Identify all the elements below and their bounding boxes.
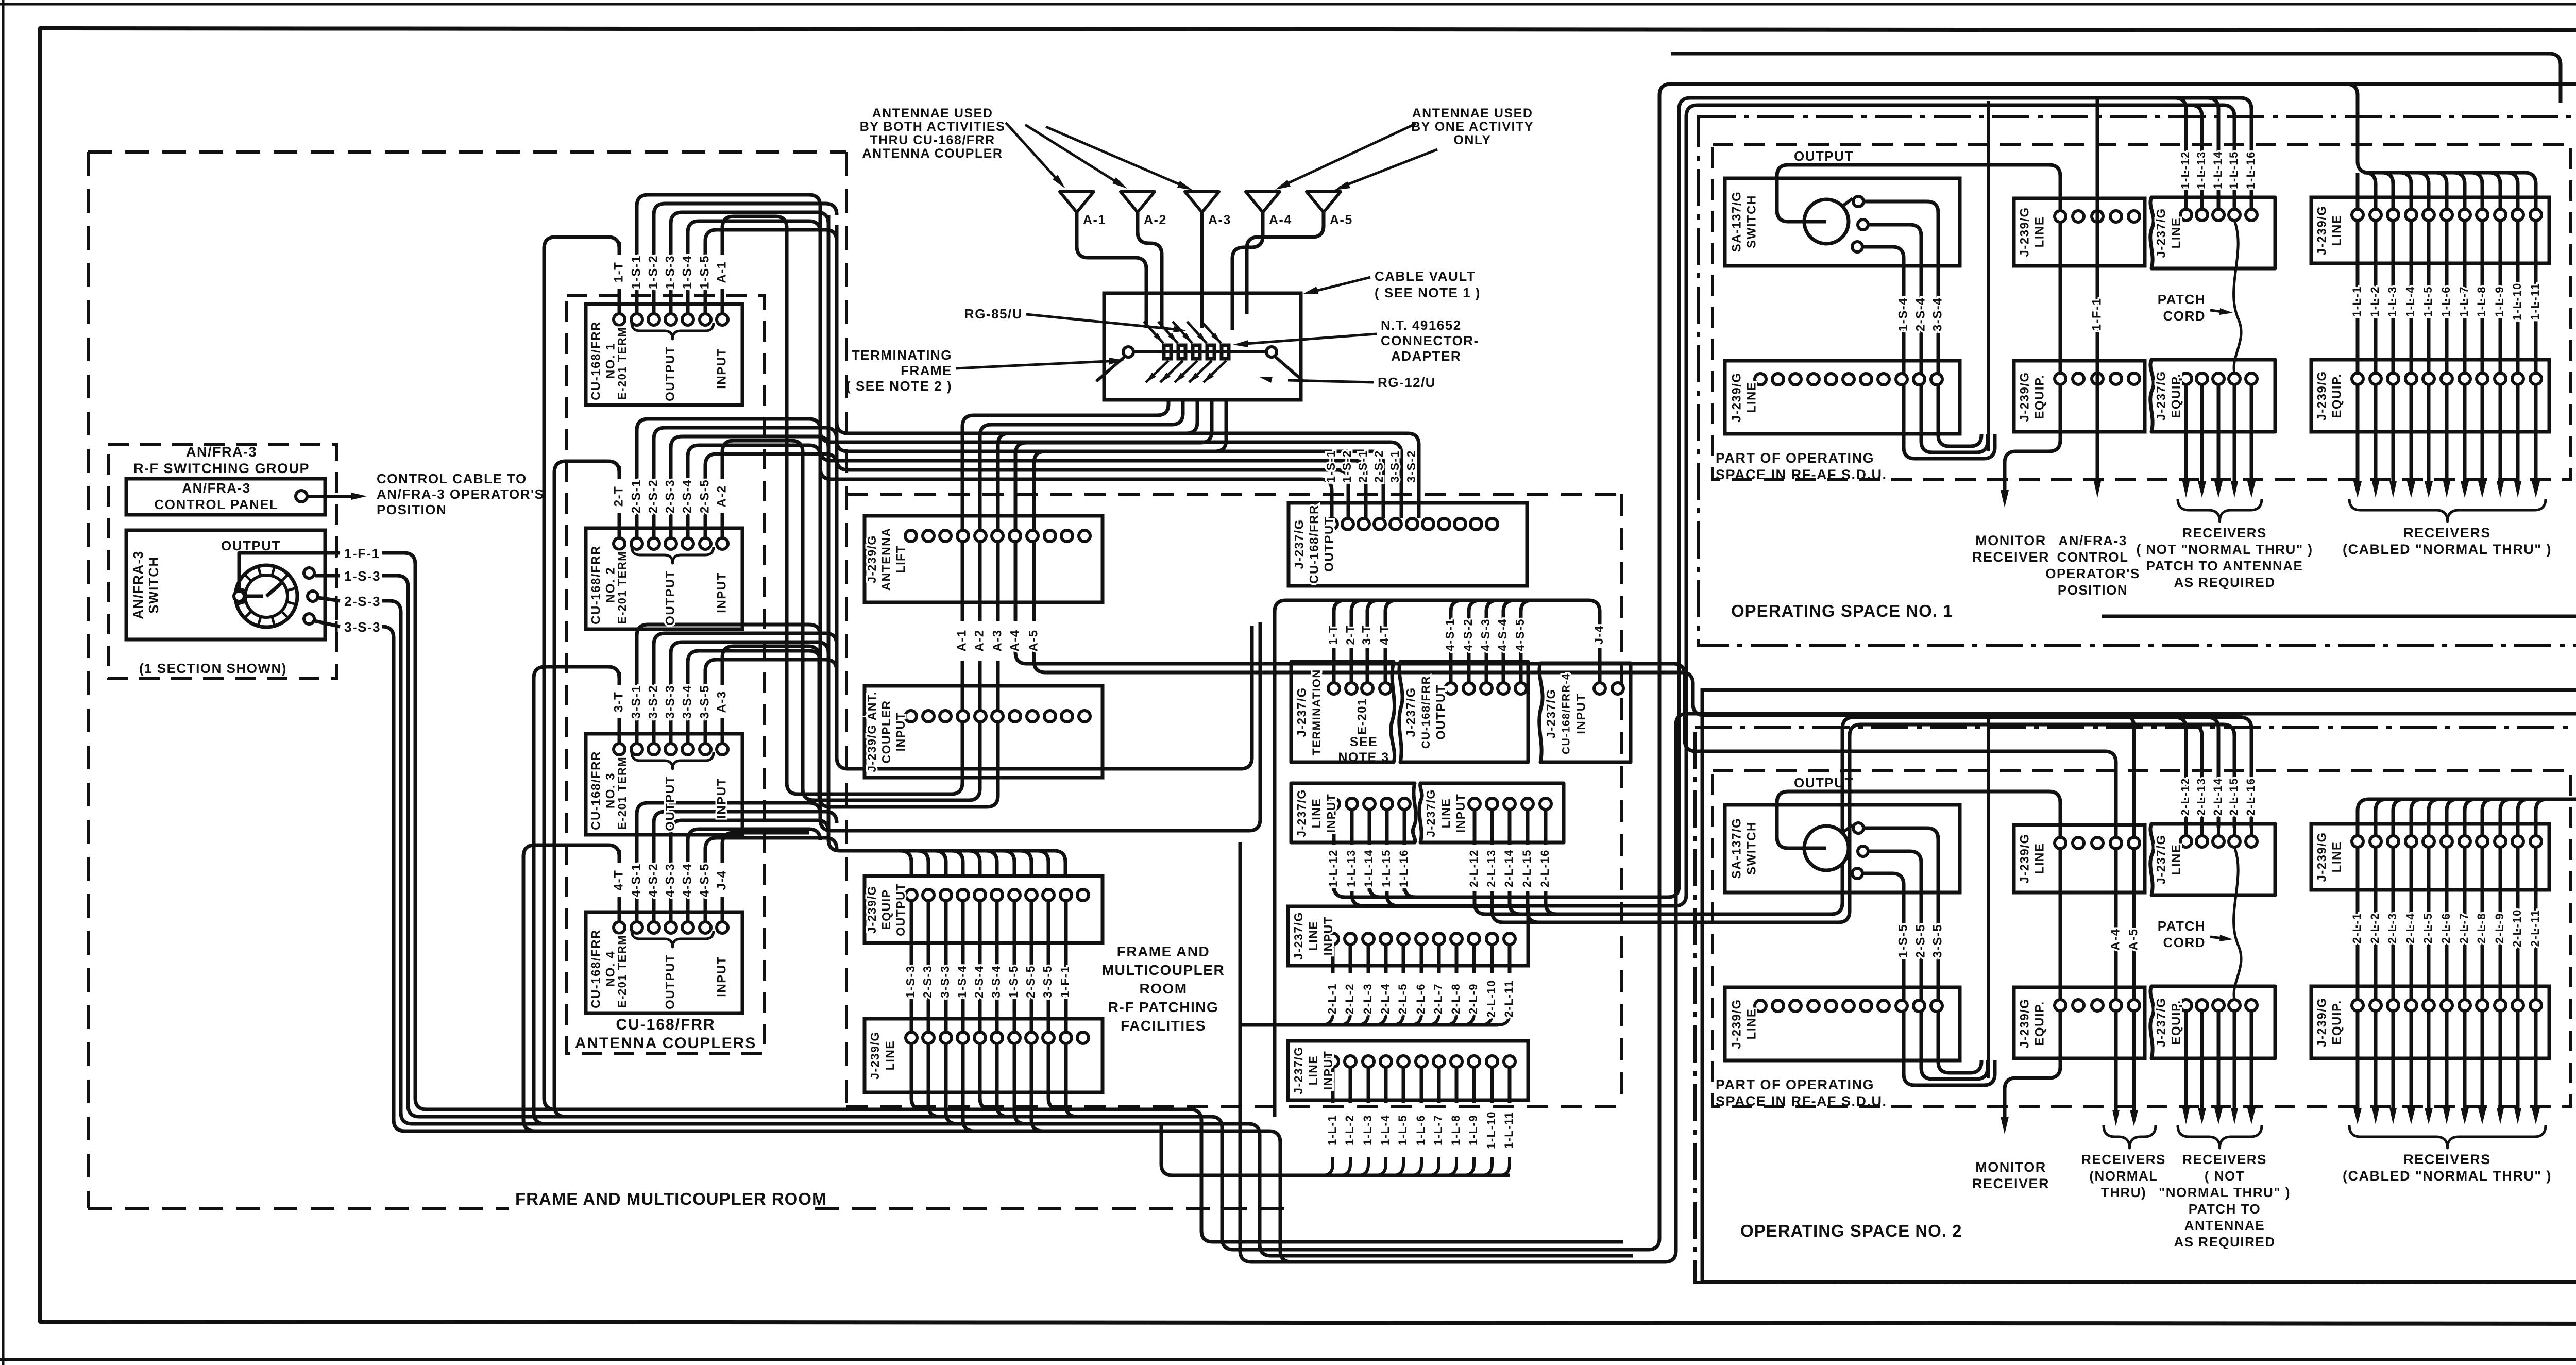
svg-text:J-239/G: J-239/G [2315,832,2329,882]
svg-text:1-L-2: 1-L-2 [1343,1115,1356,1145]
svg-text:A-5: A-5 [1330,213,1353,227]
svg-text:R-F SWITCHING GROUP: R-F SWITCHING GROUP [133,461,310,476]
svg-text:OUTPUT: OUTPUT [663,570,677,626]
svg-text:A-1: A-1 [715,261,728,283]
svg-text:2-S-4: 2-S-4 [1913,297,1927,331]
svg-text:A-4: A-4 [1008,629,1022,651]
svg-text:1-S-5: 1-S-5 [1896,924,1910,958]
svg-text:LINE: LINE [2169,217,2183,249]
svg-text:1-S-2: 1-S-2 [646,255,660,289]
svg-text:ANTENNAE USED: ANTENNAE USED [1412,106,1533,121]
svg-text:INPUT: INPUT [715,778,728,819]
svg-text:1-L-12: 1-L-12 [1327,849,1340,887]
svg-text:SA-137/G: SA-137/G [1730,818,1743,879]
svg-text:J-237/G: J-237/G [1295,687,1309,737]
svg-text:OUTPUT: OUTPUT [663,954,677,1009]
svg-text:EQUIP.: EQUIP. [2169,373,2183,418]
svg-text:OPERATOR'S: OPERATOR'S [2045,566,2140,581]
svg-text:EQUIP.: EQUIP. [2330,1000,2344,1044]
svg-text:2-S-2: 2-S-2 [646,479,660,513]
svg-text:"NORMAL THRU" ): "NORMAL THRU" ) [2159,1185,2291,1200]
svg-text:(CABLED "NORMAL THRU" ): (CABLED "NORMAL THRU" ) [2343,1168,2552,1184]
svg-text:A-4: A-4 [2108,928,2122,950]
svg-text:4-T: 4-T [1378,625,1391,645]
svg-text:2-L-11: 2-L-11 [1502,980,1515,1018]
svg-text:2-L-2: 2-L-2 [2368,913,2381,943]
svg-text:E-201: E-201 [1355,698,1369,735]
svg-text:J-237/G: J-237/G [1292,912,1305,960]
svg-text:AN/FRA-3: AN/FRA-3 [130,550,146,619]
svg-text:2-L-5: 2-L-5 [2421,913,2434,943]
svg-text:2-L-5: 2-L-5 [1396,983,1409,1014]
svg-text:CONTROL PANEL: CONTROL PANEL [155,497,279,512]
svg-text:1-F-1: 1-F-1 [2090,298,2104,331]
svg-text:2-S-1: 2-S-1 [629,479,643,513]
svg-text:1-T: 1-T [1326,625,1340,645]
svg-text:J-239/G: J-239/G [868,1031,882,1080]
svg-text:MONITOR: MONITOR [1975,1159,2046,1175]
svg-text:3-T: 3-T [1360,625,1373,645]
svg-text:(NORMAL: (NORMAL [2089,1168,2158,1184]
svg-text:J-237/G: J-237/G [1424,789,1437,837]
svg-text:1-L-13: 1-L-13 [2195,151,2208,189]
svg-text:1-L-3: 1-L-3 [1361,1115,1374,1145]
svg-text:1-L-5: 1-L-5 [1396,1115,1409,1145]
svg-text:4-S-3: 4-S-3 [663,863,677,897]
svg-text:A-3: A-3 [990,629,1004,651]
svg-text:LINE: LINE [2032,843,2046,874]
svg-text:R-F PATCHING: R-F PATCHING [1108,999,1219,1015]
svg-text:J-237/G: J-237/G [1295,789,1308,837]
svg-text:SPACE IN RF-AF S.D.U.: SPACE IN RF-AF S.D.U. [1716,467,1887,482]
svg-text:( SEE NOTE 1 ): ( SEE NOTE 1 ) [1375,285,1481,300]
svg-text:RECEIVERS: RECEIVERS [2403,525,2491,541]
svg-text:2-S-5: 2-S-5 [698,479,711,513]
svg-text:RECEIVERS: RECEIVERS [2403,1152,2491,1167]
svg-text:1-L-16: 1-L-16 [2244,151,2257,189]
svg-text:RG-12/U: RG-12/U [1378,375,1436,390]
svg-text:3-S-5: 3-S-5 [1041,965,1054,998]
svg-text:2-L-10: 2-L-10 [2511,909,2523,947]
svg-text:J-239/G: J-239/G [2315,370,2329,420]
svg-text:OUTPUT: OUTPUT [1794,775,1854,790]
svg-text:J-237/G: J-237/G [1544,688,1558,738]
svg-text:OPERATING SPACE NO. 1: OPERATING SPACE NO. 1 [1731,601,1953,620]
svg-text:AN/FRA-3: AN/FRA-3 [186,444,257,460]
svg-text:4-S-2: 4-S-2 [1461,618,1475,651]
svg-text:J-239/G: J-239/G [2018,998,2031,1048]
svg-text:RG-85/U: RG-85/U [964,306,1023,322]
svg-text:CORD: CORD [2163,308,2206,324]
svg-text:J-237/G: J-237/G [2154,997,2168,1047]
svg-text:PATCH: PATCH [2158,918,2206,934]
svg-text:INPUT: INPUT [1325,794,1338,833]
svg-text:AN/FRA-3 OPERATOR'S: AN/FRA-3 OPERATOR'S [377,486,545,502]
svg-text:LINE: LINE [1307,921,1320,951]
svg-text:EQUIP.: EQUIP. [2032,374,2046,419]
svg-text:A-2: A-2 [1144,213,1167,227]
svg-text:3-S-4: 3-S-4 [1930,297,1944,331]
svg-text:J-239/G: J-239/G [2315,997,2329,1047]
svg-text:2-L-3: 2-L-3 [2386,913,2399,943]
svg-text:1-L-11: 1-L-11 [1502,1111,1515,1149]
svg-text:1-L-15: 1-L-15 [1380,849,1393,887]
svg-text:CU-168/FRR: CU-168/FRR [589,751,603,830]
svg-text:INPUT: INPUT [894,712,907,752]
svg-text:AN/FRA-3: AN/FRA-3 [182,480,250,496]
svg-text:2-S-4: 2-S-4 [680,479,694,513]
svg-text:TERMINATING: TERMINATING [852,347,952,363]
svg-text:4-S-2: 4-S-2 [646,863,660,897]
svg-text:RECEIVERS: RECEIVERS [2182,1152,2267,1167]
svg-text:CU-168/FRR: CU-168/FRR [589,321,603,400]
svg-text:MONITOR: MONITOR [1975,533,2046,548]
svg-text:THRU CU-168/FRR: THRU CU-168/FRR [870,133,995,147]
svg-text:2-L-7: 2-L-7 [1432,983,1445,1014]
svg-text:1-L-4: 1-L-4 [1379,1115,1392,1145]
svg-text:1-L-9: 1-L-9 [2493,286,2506,317]
svg-text:2-L-7: 2-L-7 [2458,913,2470,943]
svg-text:3-S-3: 3-S-3 [938,965,952,998]
svg-text:( SEE NOTE 2 ): ( SEE NOTE 2 ) [846,378,952,394]
svg-text:2-L-16: 2-L-16 [2244,778,2257,816]
svg-text:E-201 TERM: E-201 TERM [616,756,629,830]
svg-text:J-237/G: J-237/G [2154,370,2168,420]
svg-text:PATCH TO: PATCH TO [2189,1201,2261,1217]
svg-text:1-S-2: 1-S-2 [1340,450,1353,483]
svg-text:(1 SECTION SHOWN): (1 SECTION SHOWN) [139,661,287,676]
svg-text:J-237/G: J-237/G [2154,834,2168,884]
svg-text:A-3: A-3 [1208,213,1231,227]
svg-text:2-S-3: 2-S-3 [663,479,677,513]
svg-text:A-4: A-4 [1269,213,1292,227]
svg-text:3-S-5: 3-S-5 [1930,924,1944,958]
svg-text:3-S-2: 3-S-2 [1404,450,1418,483]
svg-text:2-L-16: 2-L-16 [1538,849,1551,887]
svg-text:EQUIP: EQUIP [879,889,893,930]
svg-text:CU-168/FRR-4: CU-168/FRR-4 [1561,673,1572,754]
svg-text:RECEIVERS: RECEIVERS [2081,1152,2166,1167]
svg-text:1-L-15: 1-L-15 [2227,151,2240,189]
svg-text:2-L-3: 2-L-3 [1361,983,1374,1014]
svg-text:3-S-4: 3-S-4 [989,965,1003,998]
svg-text:2-L-9: 2-L-9 [1467,983,1480,1014]
svg-text:INPUT: INPUT [1321,1051,1335,1090]
svg-text:3-S-2: 3-S-2 [646,685,660,719]
svg-text:PART OF OPERATING: PART OF OPERATING [1716,1077,1874,1092]
svg-text:CU-168/FRR: CU-168/FRR [1419,676,1432,749]
svg-text:ROOM: ROOM [1139,981,1187,997]
svg-text:PATCH TO ANTENNAE: PATCH TO ANTENNAE [2146,558,2303,574]
svg-text:4-T: 4-T [612,870,625,891]
svg-text:EQUIP.: EQUIP. [2330,373,2344,418]
svg-text:CORD: CORD [2163,935,2206,950]
svg-text:1-S-1: 1-S-1 [1324,450,1337,483]
svg-text:2-L-13: 2-L-13 [1485,849,1498,887]
svg-text:3-S-3: 3-S-3 [663,685,677,719]
svg-text:2-L-15: 2-L-15 [2227,778,2240,816]
svg-text:PART OF OPERATING: PART OF OPERATING [1716,450,1874,466]
svg-text:4-S-3: 4-S-3 [1479,618,1492,651]
svg-text:A-5: A-5 [2126,928,2140,950]
svg-text:2-L-15: 2-L-15 [1520,849,1533,887]
svg-text:2-L-6: 2-L-6 [2439,913,2452,943]
svg-text:J-4: J-4 [1592,625,1605,645]
svg-text:2-L-12: 2-L-12 [2179,778,2192,816]
svg-text:2-L-4: 2-L-4 [2404,913,2417,943]
svg-text:1-L-8: 1-L-8 [1449,1115,1462,1145]
svg-text:J-239/G: J-239/G [2018,207,2031,257]
svg-text:INPUT: INPUT [715,348,728,389]
svg-text:1-S-4: 1-S-4 [955,965,969,998]
svg-text:J-237/G: J-237/G [1292,1046,1305,1094]
svg-text:1-L-14: 1-L-14 [1362,849,1375,887]
svg-text:LINE: LINE [2330,215,2344,246]
svg-text:4-S-5: 4-S-5 [698,863,711,897]
svg-text:1-S-1: 1-S-1 [629,255,643,289]
svg-text:( NOT "NORMAL THRU" ): ( NOT "NORMAL THRU" ) [2136,542,2313,557]
svg-text:OUTPUT: OUTPUT [1434,684,1448,740]
svg-text:A-2: A-2 [972,629,986,651]
svg-text:1-S-5: 1-S-5 [1007,965,1020,998]
svg-text:LINE: LINE [1744,382,1758,413]
svg-text:OPERATING SPACE NO. 2: OPERATING SPACE NO. 2 [1740,1221,1962,1240]
svg-text:MULTICOUPLER: MULTICOUPLER [1102,962,1225,978]
svg-text:2-L-1: 2-L-1 [1326,983,1338,1014]
svg-text:J-237/G: J-237/G [1404,687,1418,737]
svg-text:1-L-1: 1-L-1 [1326,1115,1338,1145]
svg-text:ANTENNA: ANTENNA [879,528,893,591]
svg-text:CONNECTOR-: CONNECTOR- [1381,333,1479,348]
svg-text:2-L-11: 2-L-11 [2529,909,2541,947]
svg-text:A-2: A-2 [715,485,728,507]
svg-text:3-T: 3-T [612,692,625,713]
svg-text:2-S-1: 2-S-1 [1356,450,1369,483]
svg-text:2-T: 2-T [612,486,625,507]
svg-text:J-239/G: J-239/G [2018,372,2031,422]
svg-text:4-S-4: 4-S-4 [680,863,694,897]
svg-text:INPUT: INPUT [1574,693,1588,734]
svg-text:OUTPUT: OUTPUT [663,346,677,401]
svg-text:3-S-4: 3-S-4 [680,685,694,719]
svg-text:2-L-13: 2-L-13 [2195,778,2208,816]
svg-text:A-3: A-3 [715,690,728,713]
svg-text:1-S-5: 1-S-5 [698,255,711,289]
svg-text:1-L-10: 1-L-10 [2511,282,2523,321]
svg-text:CONTROL CABLE TO: CONTROL CABLE TO [377,471,527,486]
svg-text:INPUT: INPUT [715,956,728,997]
svg-text:1-L-13: 1-L-13 [1345,849,1358,887]
svg-text:LINE: LINE [883,1040,896,1070]
svg-text:J-239/G: J-239/G [865,535,878,583]
svg-text:TERMINATION: TERMINATION [1310,669,1323,755]
svg-text:A-1: A-1 [1083,213,1106,227]
svg-text:1-S-3: 1-S-3 [663,255,677,289]
svg-text:FRAME AND MULTICOUPLER ROOM: FRAME AND MULTICOUPLER ROOM [515,1189,826,1208]
svg-text:BY BOTH ACTIVITIES: BY BOTH ACTIVITIES [860,120,1006,134]
svg-text:CU-168/FRR: CU-168/FRR [589,545,603,625]
svg-text:2-S-2: 2-S-2 [1372,450,1385,483]
svg-text:RECEIVERS: RECEIVERS [2182,525,2267,541]
svg-text:BY ONE ACTIVITY: BY ONE ACTIVITY [1411,120,1534,134]
svg-text:J-239/G: J-239/G [865,885,878,934]
svg-text:FRAME AND: FRAME AND [1117,943,1210,959]
svg-text:POSITION: POSITION [2058,582,2128,598]
svg-text:1-F-1: 1-F-1 [344,546,380,561]
svg-text:INPUT: INPUT [715,572,728,613]
svg-text:N.T. 491652: N.T. 491652 [1381,317,1462,333]
svg-text:INPUT: INPUT [1454,794,1467,833]
svg-text:AS REQUIRED: AS REQUIRED [2174,1234,2275,1250]
svg-text:J-237/G: J-237/G [2154,208,2168,258]
svg-text:1-L-3: 1-L-3 [2386,286,2399,317]
svg-text:1-L-14: 1-L-14 [2211,151,2224,189]
svg-text:1-L-9: 1-L-9 [1467,1115,1480,1145]
svg-text:OUTPUT: OUTPUT [894,883,907,936]
svg-text:ANTENNA COUPLERS: ANTENNA COUPLERS [575,1035,757,1052]
svg-text:OUTPUT: OUTPUT [1322,516,1336,572]
svg-text:1-T: 1-T [612,262,625,283]
svg-text:J-4: J-4 [715,870,728,890]
svg-text:LINE: LINE [1439,798,1452,828]
svg-text:2-T: 2-T [1344,625,1357,645]
svg-text:2-S-3: 2-S-3 [921,965,934,998]
svg-text:SWITCH: SWITCH [1744,821,1758,875]
svg-text:OUTPUT: OUTPUT [1794,148,1854,164]
svg-text:CU-168/FRR: CU-168/FRR [616,1016,715,1033]
svg-text:1-L-7: 1-L-7 [2458,286,2470,317]
svg-text:LINE: LINE [1307,1055,1320,1085]
svg-text:1-S-4: 1-S-4 [680,255,694,289]
svg-text:2-L-14: 2-L-14 [2211,778,2224,816]
svg-text:ADAPTER: ADAPTER [1391,348,1461,364]
svg-text:1-L-11: 1-L-11 [2529,283,2541,321]
svg-text:CU-168/FRR: CU-168/FRR [1307,504,1321,584]
svg-text:LINE: LINE [2032,216,2046,248]
svg-text:EQUIP.: EQUIP. [2169,1000,2183,1044]
svg-text:2-L-14: 2-L-14 [1502,849,1515,887]
svg-text:3-S-1: 3-S-1 [629,685,643,719]
svg-text:FACILITIES: FACILITIES [1121,1018,1206,1034]
svg-text:1-S-4: 1-S-4 [1896,297,1910,331]
svg-text:A-5: A-5 [1026,629,1040,651]
svg-text:4-S-1: 4-S-1 [629,863,643,897]
svg-text:POSITION: POSITION [377,502,447,517]
svg-text:1-L-6: 1-L-6 [2439,286,2452,317]
svg-text:FRAME: FRAME [901,363,952,378]
svg-text:1-L-1: 1-L-1 [2350,286,2363,317]
svg-text:J-239/G ANT.: J-239/G ANT. [865,691,878,772]
svg-text:2-L-12: 2-L-12 [1467,849,1480,887]
svg-text:J-239/G: J-239/G [2018,833,2031,883]
svg-text:3-S-3: 3-S-3 [344,619,381,635]
svg-text:2-S-5: 2-S-5 [1913,924,1927,958]
svg-text:RECEIVER: RECEIVER [1972,549,2049,565]
svg-text:J-237/G: J-237/G [1292,519,1306,569]
svg-text:(CABLED "NORMAL THRU" ): (CABLED "NORMAL THRU" ) [2343,542,2552,557]
svg-text:LINE: LINE [2330,841,2344,873]
svg-text:1-L-5: 1-L-5 [2421,286,2434,317]
svg-text:ONLY: ONLY [1453,133,1491,147]
svg-text:AN/FRA-3: AN/FRA-3 [2058,533,2127,548]
svg-text:ANTENNAE USED: ANTENNAE USED [872,106,993,121]
svg-text:LINE: LINE [1310,798,1323,828]
svg-text:AS REQUIRED: AS REQUIRED [2174,575,2275,590]
svg-text:3-S-5: 3-S-5 [698,685,711,719]
svg-text:SWITCH: SWITCH [1744,195,1758,248]
svg-text:ANTENNA COUPLER: ANTENNA COUPLER [862,146,1003,161]
svg-text:SPACE IN RF-AF S.D.U.: SPACE IN RF-AF S.D.U. [1716,1093,1887,1109]
svg-text:1-L-8: 1-L-8 [2475,286,2488,317]
svg-text:2-S-4: 2-S-4 [972,965,986,998]
svg-text:4-S-4: 4-S-4 [1496,618,1509,651]
svg-text:1-L-7: 1-L-7 [1432,1115,1445,1145]
svg-text:2-L-8: 2-L-8 [1449,983,1462,1014]
svg-text:SWITCH: SWITCH [146,556,161,614]
svg-text:2-L-8: 2-L-8 [2475,913,2488,943]
svg-text:A-1: A-1 [955,629,969,651]
svg-text:J-239/G: J-239/G [2315,205,2329,255]
svg-text:2-L-9: 2-L-9 [2493,913,2506,943]
svg-text:J-239/G: J-239/G [1730,999,1743,1049]
svg-text:1-L-6: 1-L-6 [1414,1115,1427,1145]
svg-text:2-L-6: 2-L-6 [1414,983,1427,1014]
svg-text:2-S-5: 2-S-5 [1024,965,1037,998]
svg-text:2-L-1: 2-L-1 [2350,913,2363,943]
svg-text:LINE: LINE [1744,1008,1758,1040]
svg-text:1-L-2: 1-L-2 [2368,286,2381,317]
svg-text:ANTENNAE: ANTENNAE [2184,1218,2265,1233]
svg-text:EQUIP.: EQUIP. [2032,1001,2046,1046]
svg-text:CONTROL: CONTROL [2057,549,2128,565]
svg-text:LIFT: LIFT [894,545,907,574]
svg-text:J-239/G: J-239/G [1730,372,1743,422]
svg-text:CABLE VAULT: CABLE VAULT [1375,268,1476,284]
svg-text:2-L-2: 2-L-2 [1343,983,1356,1014]
svg-text:LINE: LINE [2169,844,2183,875]
svg-text:RECEIVER: RECEIVER [1972,1176,2049,1191]
svg-text:SA-137/G: SA-137/G [1730,191,1743,252]
svg-text:1-L-12: 1-L-12 [2179,151,2192,189]
svg-text:( NOT: ( NOT [2205,1168,2245,1184]
svg-text:1-L-10: 1-L-10 [1485,1111,1498,1149]
svg-text:1-F-1: 1-F-1 [1058,966,1072,998]
svg-text:E-201 TERM: E-201 TERM [616,551,629,624]
svg-text:1-S-3: 1-S-3 [904,965,917,998]
svg-text:2-L-4: 2-L-4 [1379,983,1392,1014]
svg-text:2-L-10: 2-L-10 [1485,980,1498,1018]
svg-text:4-S-1: 4-S-1 [1443,618,1456,651]
svg-text:2-S-3: 2-S-3 [344,594,381,609]
svg-text:E-201 TERM: E-201 TERM [616,327,629,400]
svg-text:PATCH: PATCH [2158,292,2206,307]
svg-text:THRU): THRU) [2101,1185,2146,1200]
svg-text:E-201 TERM: E-201 TERM [616,935,629,1008]
svg-text:INPUT: INPUT [1321,916,1335,956]
svg-text:NOTE 3: NOTE 3 [1338,750,1389,765]
svg-text:1-L-16: 1-L-16 [1397,849,1410,887]
svg-text:COUPLER: COUPLER [879,700,893,764]
svg-text:SEE: SEE [1350,735,1378,749]
svg-text:4-S-5: 4-S-5 [1513,618,1527,651]
svg-text:CU-168/FRR: CU-168/FRR [589,929,603,1008]
svg-text:OUTPUT: OUTPUT [663,776,677,831]
svg-text:3-S-1: 3-S-1 [1388,450,1401,483]
svg-text:1-S-3: 1-S-3 [344,568,381,584]
svg-text:1-L-4: 1-L-4 [2404,286,2417,317]
